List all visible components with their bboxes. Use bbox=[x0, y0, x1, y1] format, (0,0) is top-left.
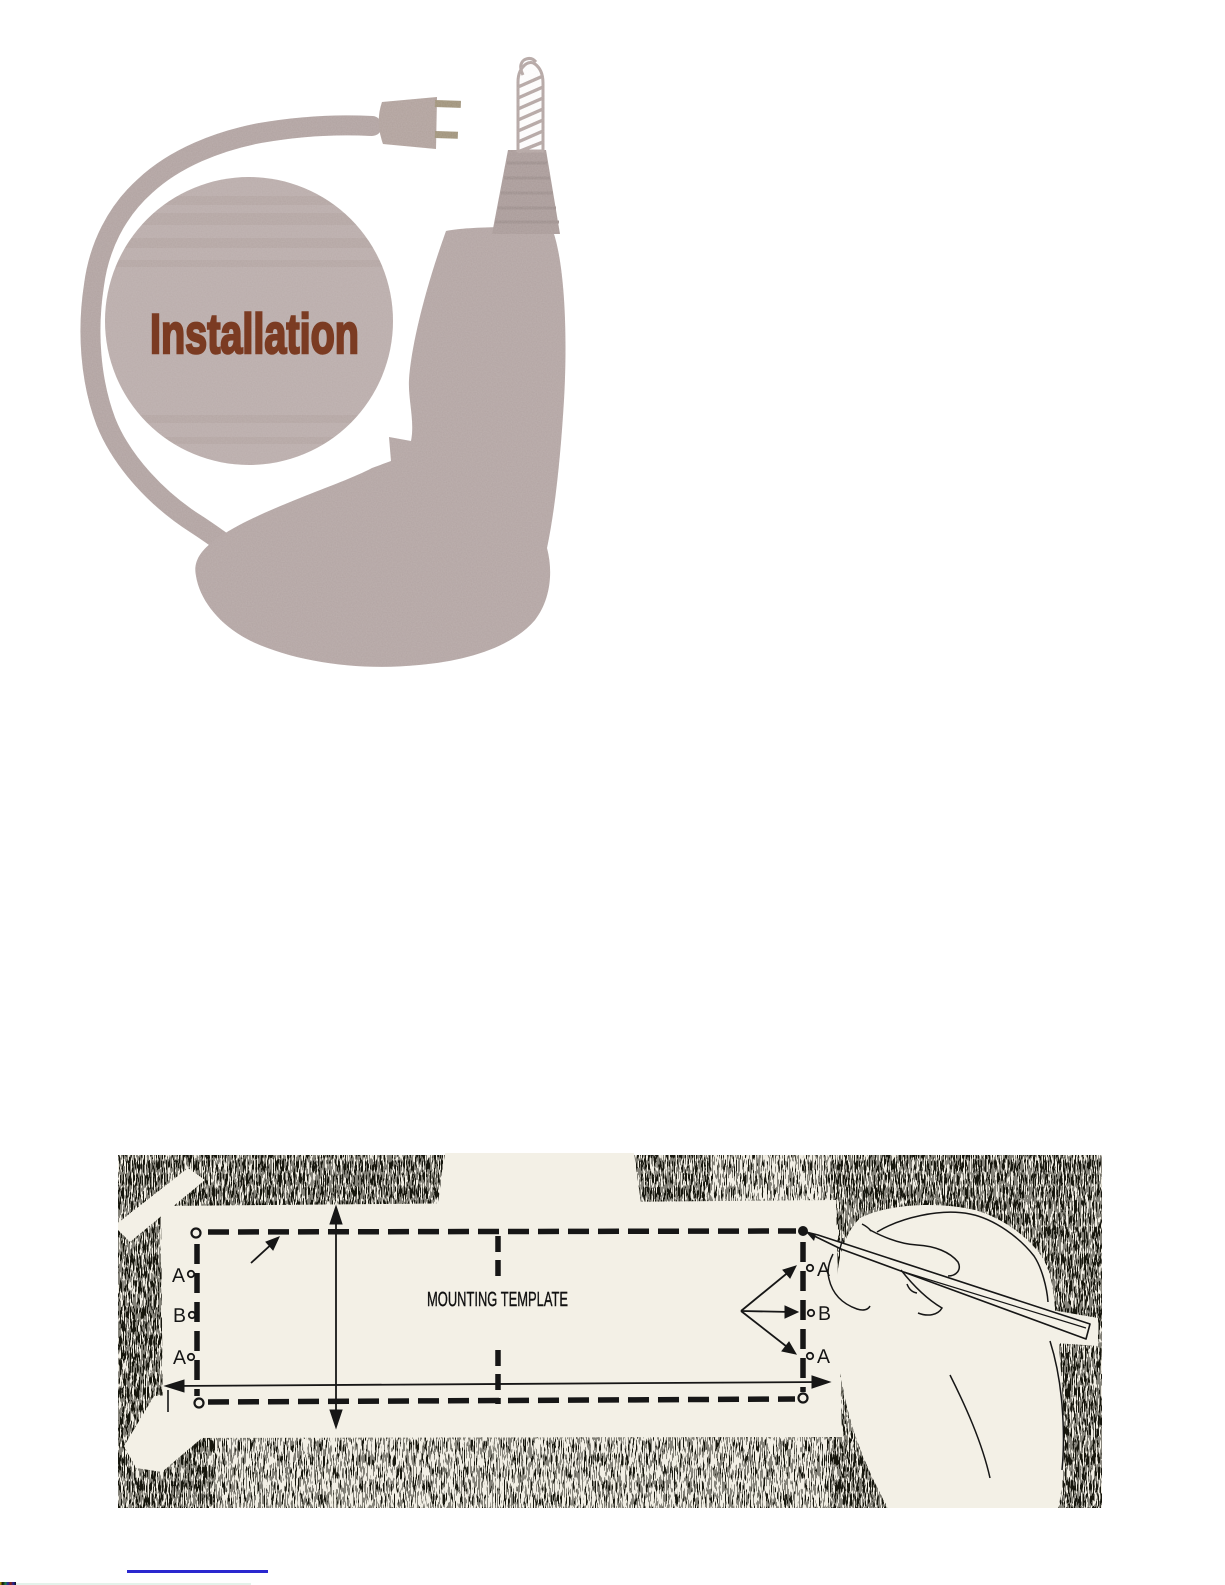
svg-text:Installation: Installation bbox=[150, 302, 359, 365]
svg-text:MOUNTING TEMPLATE: MOUNTING TEMPLATE bbox=[427, 1288, 568, 1311]
svg-text:A: A bbox=[173, 1347, 187, 1369]
svg-text:B: B bbox=[173, 1305, 186, 1327]
svg-text:A: A bbox=[817, 1346, 831, 1368]
svg-text:A: A bbox=[172, 1265, 186, 1287]
svg-text:B: B bbox=[818, 1303, 831, 1325]
